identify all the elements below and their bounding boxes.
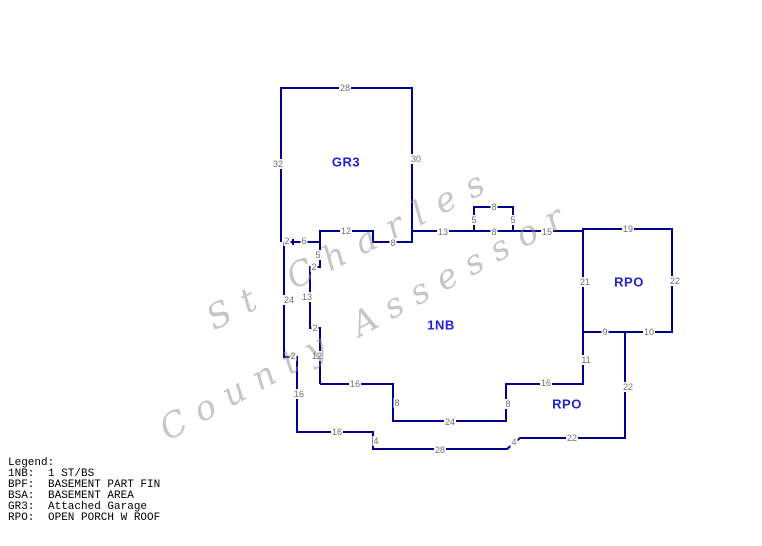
region-label-gr3: GR3 [332, 155, 360, 170]
dimension-label: 15 [541, 227, 553, 237]
dimension-label: 21 [579, 277, 591, 287]
dimension-label: 22 [566, 433, 578, 443]
legend: Legend: 1NB:1 ST/BS BPF:BASEMENT PART FI… [8, 458, 160, 524]
dimension-label: 6 [300, 236, 307, 246]
dimension-label: 2 [289, 351, 296, 361]
sketch-canvas: 2832302612813585815192122910112216824816… [0, 0, 762, 546]
dimension-label: 16 [349, 379, 361, 389]
dimension-label: 2 [311, 323, 318, 333]
dimension-label: 22 [669, 276, 681, 286]
dimension-label: 22 [622, 382, 634, 392]
dimension-label: 28 [339, 83, 351, 93]
region-label-1nb: 1NB [427, 318, 455, 333]
main-top-edge [284, 229, 583, 242]
dimension-label: 12 [311, 351, 323, 361]
main-bottom-edge [320, 332, 583, 421]
dimension-label: 13 [437, 227, 449, 237]
dimension-label: 24 [444, 417, 456, 427]
dimension-label: 16 [293, 389, 305, 399]
dimension-label: 5 [509, 215, 516, 225]
dimension-label: 12 [340, 226, 352, 236]
region-label-rpo: RPO [614, 275, 644, 290]
dimension-label: 16 [540, 378, 552, 388]
dimension-label: 2 [310, 262, 317, 272]
dimension-label: 2 [283, 236, 290, 246]
legend-code: RPO: [8, 513, 48, 524]
legend-entry: RPO:OPEN PORCH W ROOF [8, 513, 160, 524]
dimension-label: 10 [643, 327, 655, 337]
dimension-label: 11 [580, 355, 591, 365]
dimension-label: 9 [601, 327, 608, 337]
dimension-label: 8 [490, 202, 497, 212]
dimension-label: 4 [510, 437, 517, 447]
dimension-label: 4 [372, 436, 379, 446]
dimension-label: 30 [410, 154, 422, 164]
dimension-label: 8 [389, 238, 396, 248]
dimension-label: 5 [314, 250, 321, 260]
dimension-label: 13 [301, 292, 313, 302]
legend-desc: OPEN PORCH W ROOF [48, 512, 160, 524]
region-label-rpo: RPO [552, 397, 582, 412]
dimension-label: 5 [470, 215, 477, 225]
dimension-label: 8 [490, 227, 497, 237]
dimension-label: 8 [504, 399, 511, 409]
dimension-label: 28 [434, 445, 446, 455]
dimension-label: 32 [272, 159, 284, 169]
dimension-label: 19 [622, 224, 634, 234]
dimension-label: 24 [283, 295, 295, 305]
dimension-label: 16 [331, 427, 343, 437]
dimension-label: 8 [393, 398, 400, 408]
